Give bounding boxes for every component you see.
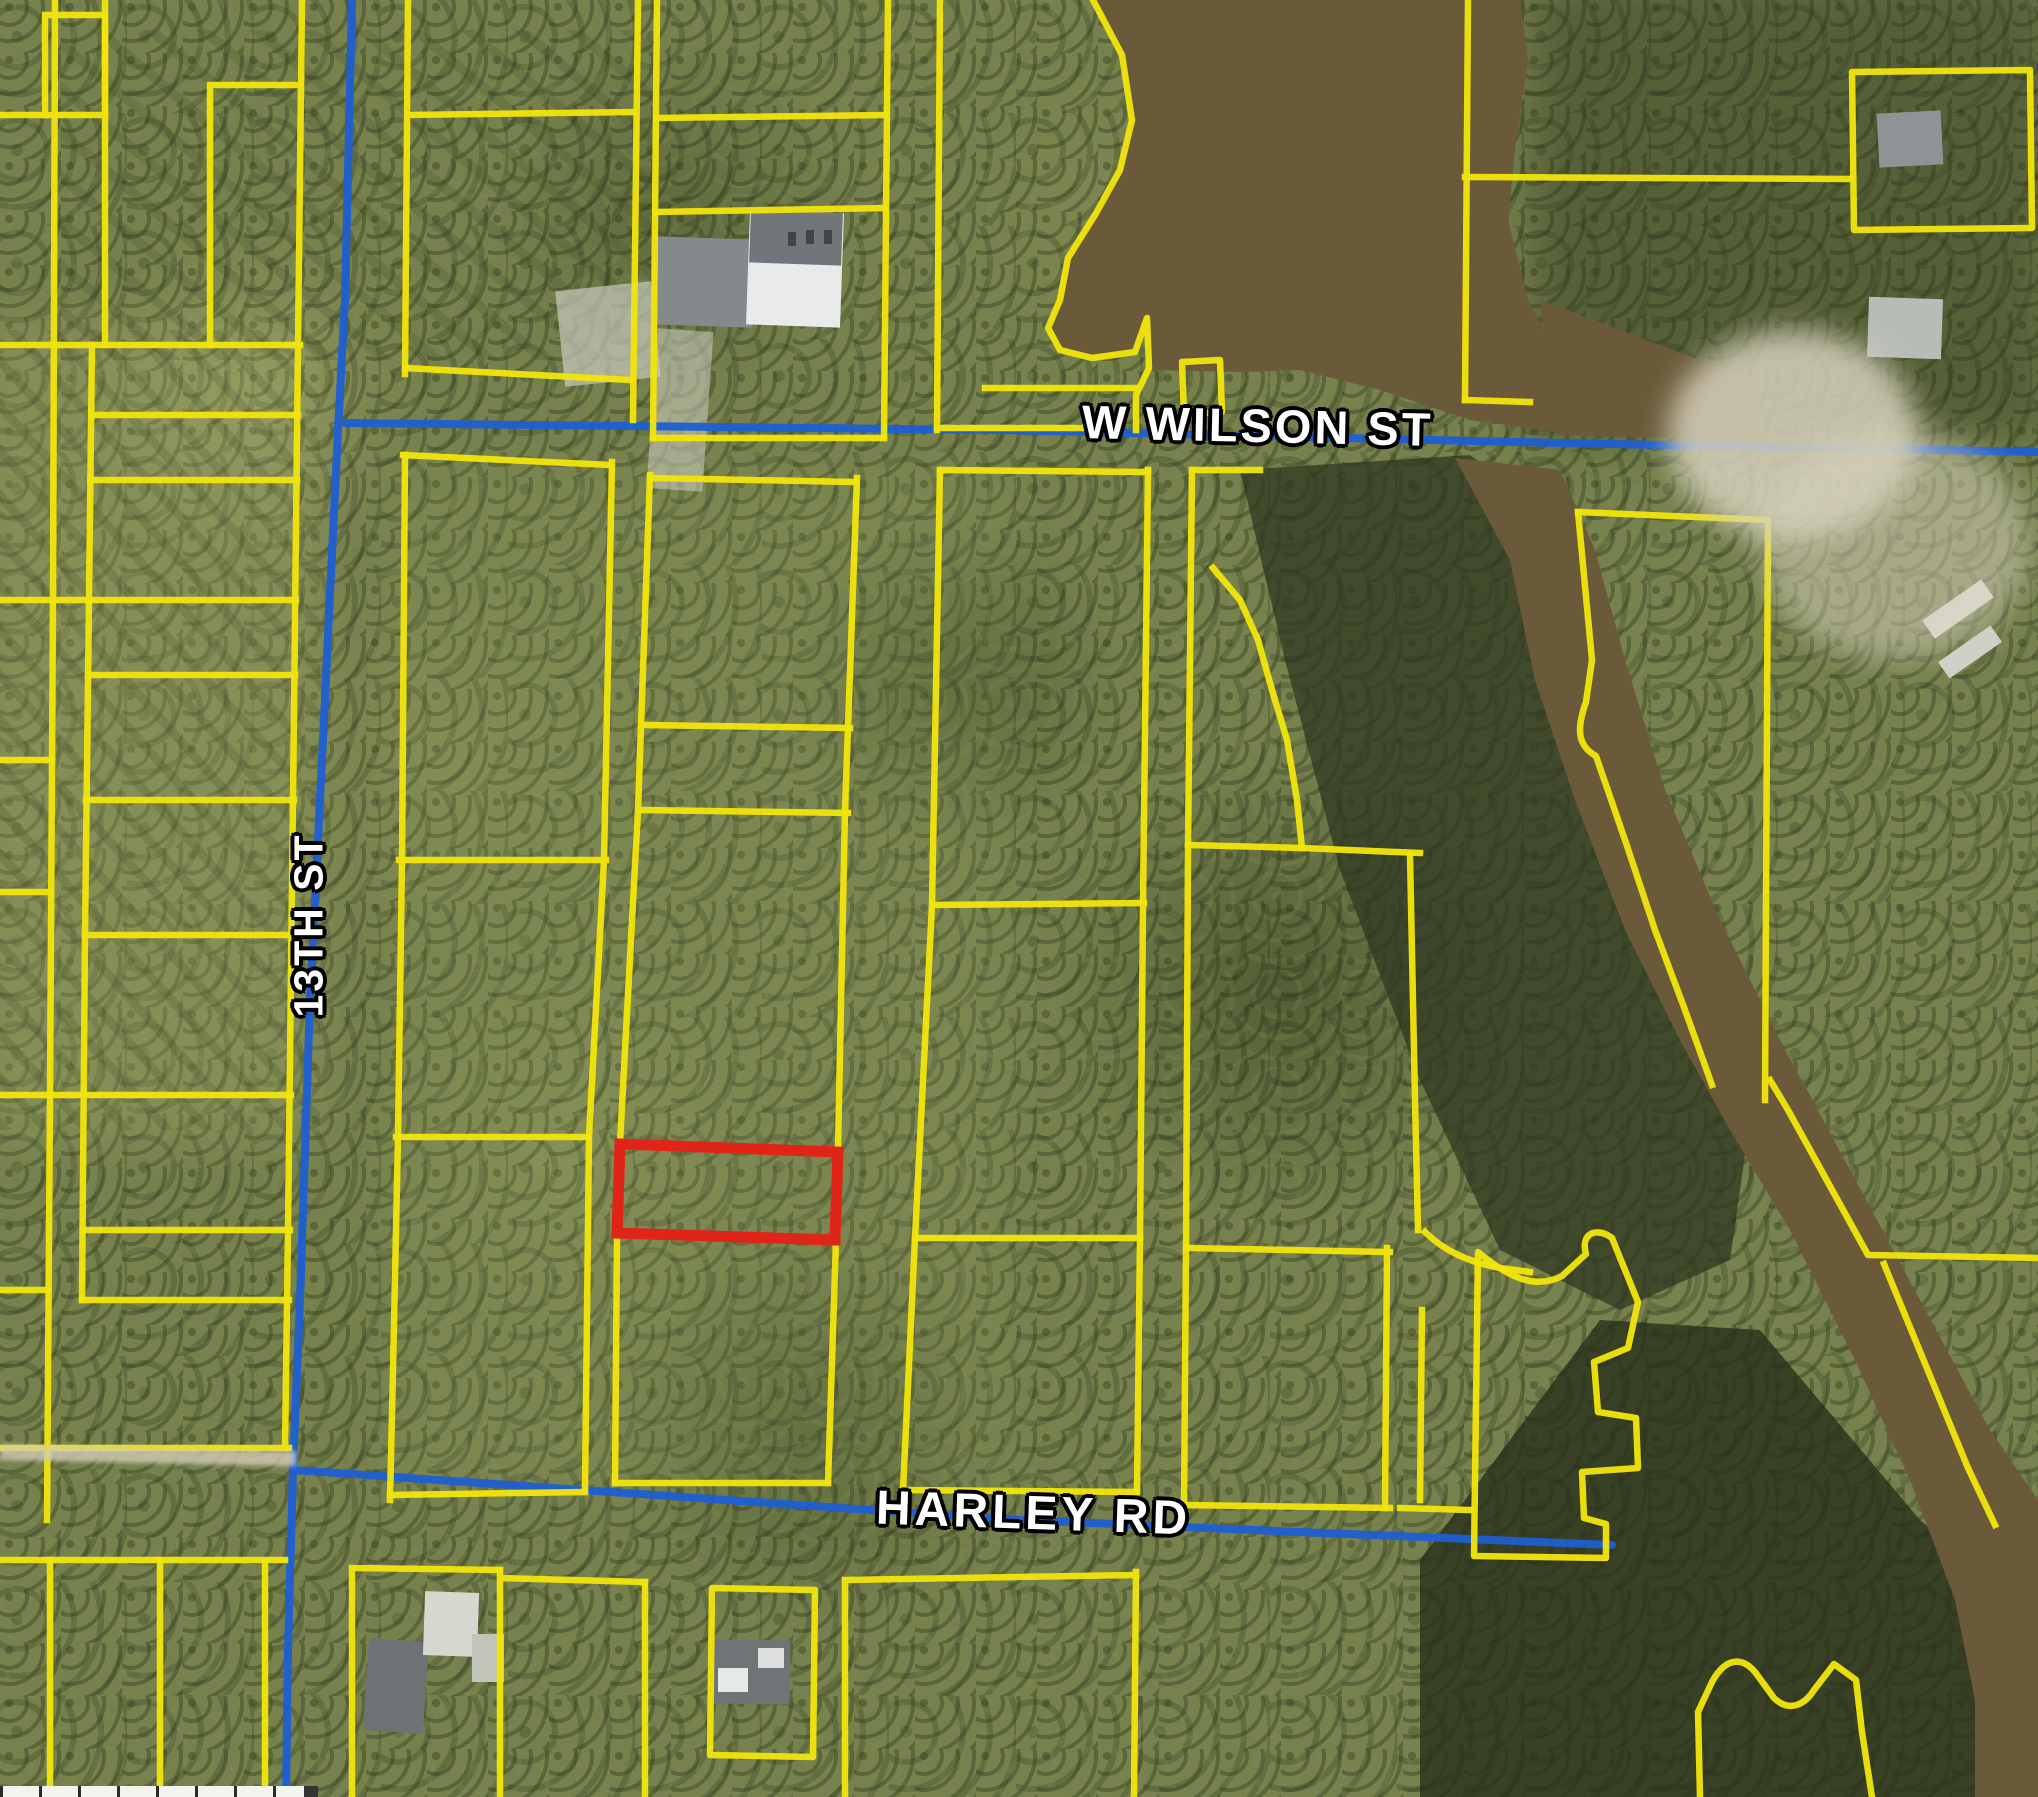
road-label-w-wilson-st: W WILSON ST: [1081, 394, 1434, 457]
house-bottom-center-white-2: [758, 1648, 784, 1668]
house-top-right: [1877, 110, 1944, 167]
house-roof-gray: [650, 236, 755, 328]
scale-bar-fragment: [0, 1786, 318, 1797]
scale-bar-endcap: [304, 1786, 318, 1797]
map-viewport[interactable]: W WILSON ST 13TH ST HARLEY RD: [0, 0, 2038, 1797]
roof-vent: [806, 230, 814, 244]
house-bottom-center-white: [718, 1668, 748, 1692]
sand-clearing-right: [1760, 430, 2030, 660]
house-bottom-left: [363, 1638, 429, 1734]
shed-bottom-left: [423, 1591, 479, 1657]
house-right-edge: [1867, 297, 1943, 360]
roof-vent: [824, 230, 832, 244]
road-label-harley-rd: HARLEY RD: [875, 1481, 1192, 1547]
driveway-patch: [555, 281, 661, 387]
road-label-13th-st: 13TH ST: [286, 832, 333, 1017]
roof-vent: [788, 232, 796, 246]
highlight-parcel-outline[interactable]: [617, 1144, 838, 1240]
